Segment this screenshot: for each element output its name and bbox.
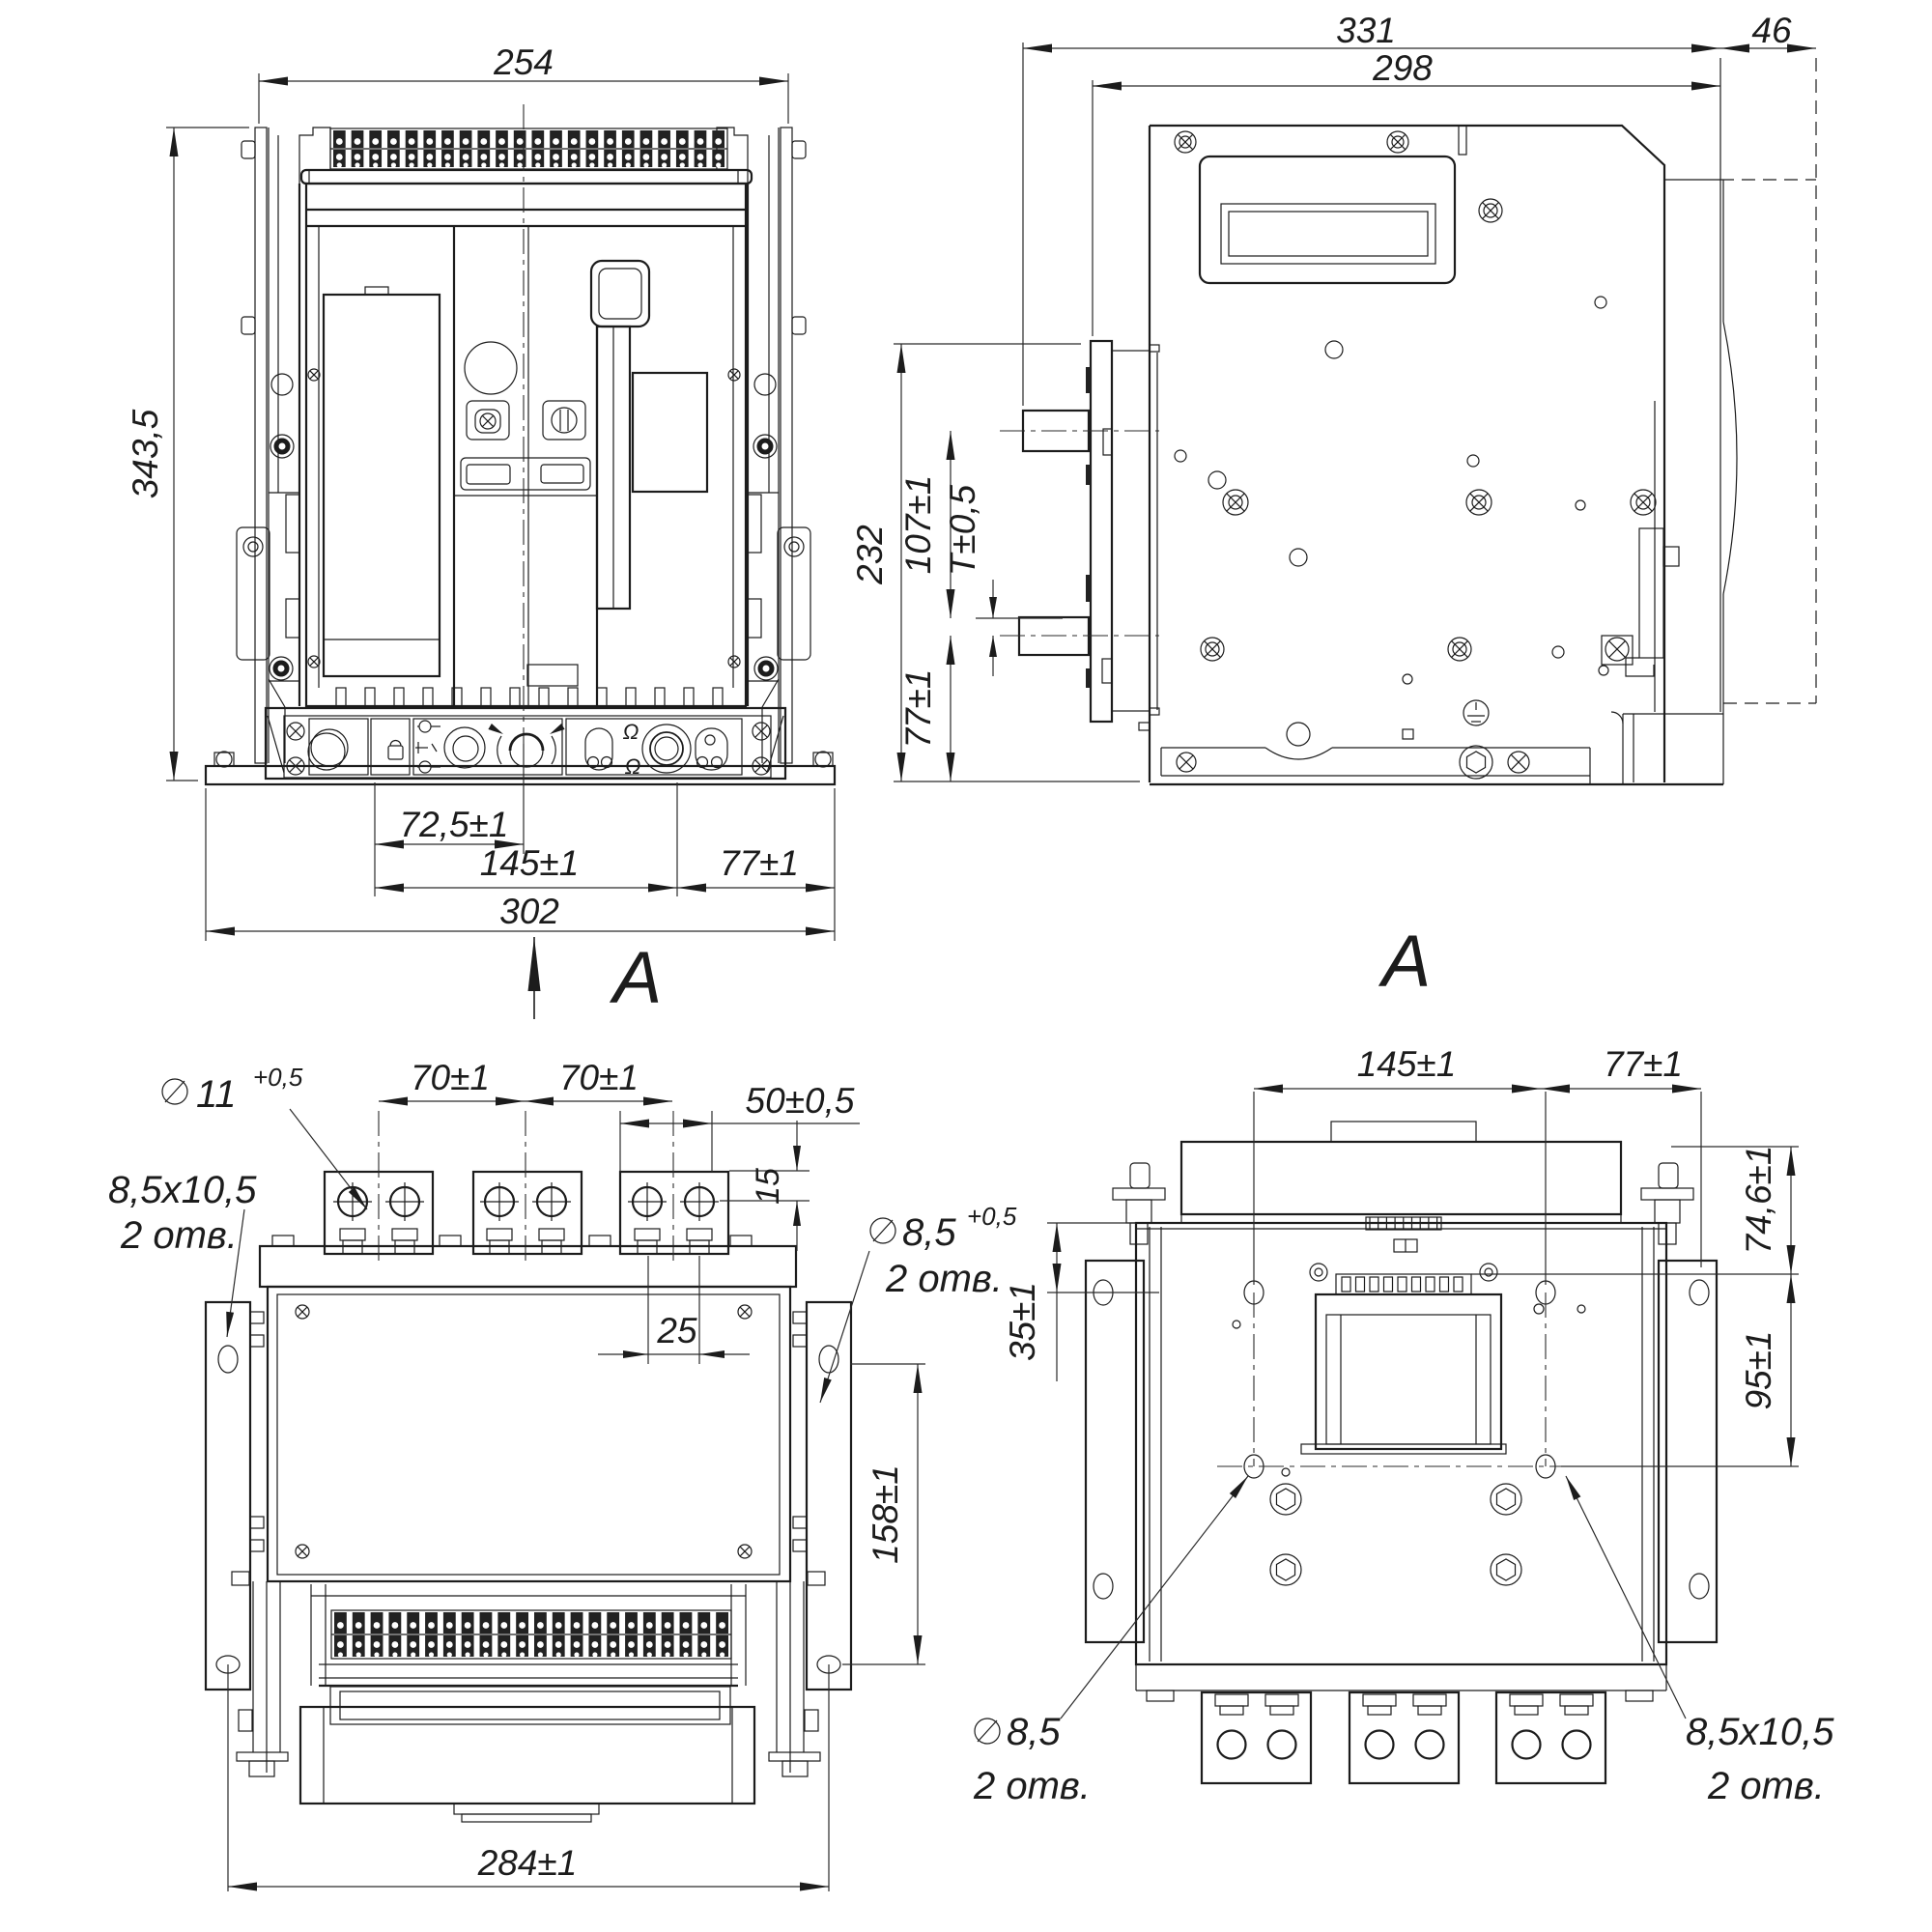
svg-text:145±1: 145±1 (480, 843, 580, 883)
svg-text:77±1: 77±1 (1604, 1044, 1683, 1084)
svg-text:8,5: 8,5 (902, 1211, 956, 1254)
svg-text:8,5x10,5: 8,5x10,5 (1686, 1711, 1834, 1753)
svg-text:2 отв.: 2 отв. (973, 1765, 1091, 1807)
svg-text:232: 232 (850, 525, 890, 585)
svg-text:107±1: 107±1 (898, 475, 938, 575)
svg-text:331: 331 (1336, 11, 1396, 50)
svg-text:158±1: 158±1 (866, 1464, 905, 1564)
svg-text:70±1: 70±1 (559, 1058, 639, 1097)
svg-text:8,5x10,5: 8,5x10,5 (108, 1169, 257, 1211)
svg-text:77±1: 77±1 (720, 843, 799, 883)
svg-text:50±0,5: 50±0,5 (746, 1081, 855, 1121)
svg-text:95±1: 95±1 (1739, 1330, 1778, 1409)
svg-text:35±1: 35±1 (1003, 1282, 1042, 1361)
svg-text:2 отв.: 2 отв. (120, 1214, 238, 1257)
svg-text:254: 254 (493, 43, 554, 82)
svg-text:70±1: 70±1 (411, 1058, 490, 1097)
svg-text:+0,5: +0,5 (967, 1202, 1017, 1231)
svg-text:Ω: Ω (623, 720, 639, 744)
svg-text:145±1: 145±1 (1357, 1044, 1457, 1084)
svg-text:2 отв.: 2 отв. (1707, 1765, 1825, 1807)
svg-text:T±0,5: T±0,5 (943, 484, 982, 576)
svg-text:Ω: Ω (625, 754, 641, 779)
svg-text:343,5: 343,5 (126, 409, 165, 498)
svg-text:74,6±1: 74,6±1 (1739, 1146, 1778, 1255)
svg-text:A: A (1378, 921, 1432, 1003)
svg-text:77±1: 77±1 (898, 668, 938, 748)
svg-text:11: 11 (196, 1073, 237, 1116)
svg-text:2 отв.: 2 отв. (885, 1258, 1003, 1300)
svg-text:298: 298 (1372, 48, 1433, 88)
svg-text:25: 25 (656, 1311, 697, 1350)
svg-text:A: A (610, 937, 663, 1019)
svg-text:284±1: 284±1 (477, 1843, 578, 1883)
svg-text:+0,5: +0,5 (253, 1063, 303, 1092)
svg-text:302: 302 (499, 892, 559, 931)
svg-text:46: 46 (1751, 11, 1792, 50)
svg-text:72,5±1: 72,5±1 (400, 805, 509, 844)
svg-text:8,5: 8,5 (1007, 1711, 1061, 1753)
svg-text:15: 15 (750, 1168, 786, 1205)
